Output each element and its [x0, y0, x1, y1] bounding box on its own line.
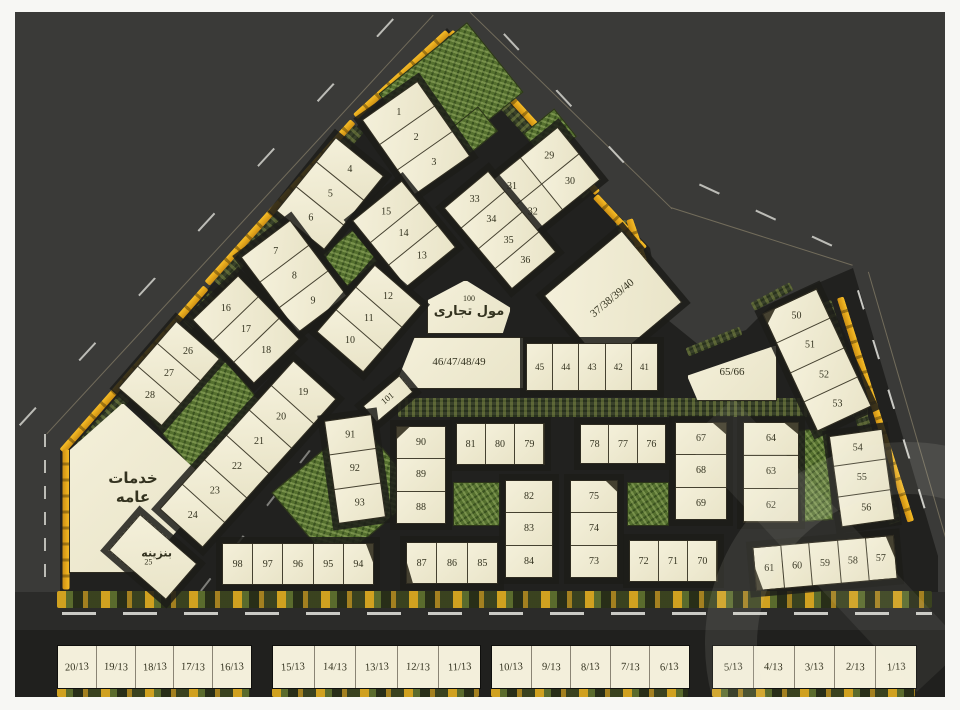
plot-number: 20/13: [65, 661, 89, 673]
plot-number: 7: [273, 245, 278, 256]
plot-number: 44: [561, 362, 570, 372]
plot: 42: [606, 344, 631, 390]
plot-number: 11/13: [448, 661, 472, 673]
plot-number: 53: [832, 398, 842, 409]
plot-number: 51: [805, 340, 815, 351]
plot-number: 43: [588, 362, 597, 372]
plot-number: 67: [696, 433, 706, 444]
plot-number: 70: [697, 556, 707, 567]
plot-label: 65/66: [719, 366, 744, 380]
road-dash-line: [62, 612, 932, 615]
plot: 94: [344, 544, 373, 584]
plot: 74: [571, 513, 617, 544]
plot-strip: 828384: [505, 480, 553, 578]
plot-number: 88: [416, 502, 426, 513]
plot: 77: [609, 425, 636, 463]
plot-number: 6: [308, 212, 313, 223]
plot: 14/13: [315, 646, 356, 688]
plot: 67: [676, 423, 726, 454]
plot-number: 1: [396, 108, 401, 119]
plot-number: 57: [876, 553, 886, 564]
plot-number: 87: [417, 558, 427, 569]
plot-number: 9: [310, 296, 315, 307]
plot-number: 61: [764, 562, 774, 573]
plot-number: 30: [565, 176, 575, 187]
plot-number: 68: [696, 465, 706, 476]
plot-label: 101: [379, 390, 397, 407]
plot-number: 78: [590, 439, 600, 450]
plot-number: 71: [668, 556, 678, 567]
plot: 96: [283, 544, 312, 584]
plot-number: 15: [381, 206, 391, 217]
grass-patch: [627, 482, 669, 526]
plot-number: 41: [640, 362, 649, 372]
plot: 64: [744, 423, 798, 455]
hedge-strip: [57, 591, 932, 608]
plot: 88: [397, 492, 445, 523]
plot-number: 8/13: [581, 661, 600, 673]
plot-number: 76: [646, 439, 656, 450]
plot-number: 12/13: [406, 661, 430, 673]
plot-number: 82: [524, 491, 534, 502]
plot: 57: [866, 536, 897, 580]
plot-label: 37/38/39/40: [588, 277, 638, 322]
plot: 44: [553, 344, 578, 390]
plot-number: 74: [589, 523, 599, 534]
plot-number: 36: [520, 255, 530, 266]
plot-number: 3/13: [805, 661, 824, 673]
plot-number: 19/13: [104, 661, 128, 673]
plot: 95: [314, 544, 343, 584]
plot-number: 58: [848, 555, 858, 566]
plot-number: 89: [416, 469, 426, 480]
plot: 97: [253, 544, 282, 584]
plot: 18/13: [136, 646, 174, 688]
plot-number: 19: [298, 387, 308, 398]
plot-number: 5: [328, 187, 333, 198]
plot: 70: [688, 541, 716, 581]
plot-number: 1/13: [886, 661, 905, 673]
plot: 87: [407, 543, 436, 583]
site-plan-map: 37/38/39/4046/47/48/4965/66101100مول تجا…: [15, 12, 945, 697]
plot-number: 13/13: [364, 661, 388, 673]
plot-number: 72: [639, 556, 649, 567]
plot-number: 35: [503, 235, 513, 246]
plot-number: 93: [355, 497, 365, 508]
plot-number: 16/13: [220, 661, 244, 673]
yellow-curb: [63, 449, 70, 589]
grass-patch: [453, 482, 501, 526]
plot-number: 91: [345, 429, 355, 440]
plot: 98: [223, 544, 252, 584]
plot-number: 8: [291, 270, 296, 281]
plot-number: 54: [853, 442, 863, 453]
plot-number: 20: [276, 412, 286, 423]
plot-number: 86: [447, 558, 457, 569]
plot: 5/13: [713, 646, 753, 688]
plot-number: 56: [861, 503, 871, 514]
plot-strip: 676869: [675, 422, 727, 520]
plot: 2/13: [835, 646, 875, 688]
plot-number: 21: [254, 436, 264, 447]
plot: 15/13: [273, 646, 314, 688]
plot-number: 55: [857, 472, 867, 483]
plot-strip: 878685: [406, 542, 498, 584]
plot-number: 75: [589, 491, 599, 502]
plot: 20/13: [58, 646, 96, 688]
plot-number: 11: [364, 312, 374, 323]
plot-strip: 757473: [570, 480, 618, 578]
plot-number: 63: [766, 466, 776, 477]
named-plot: 46/47/48/49: [394, 337, 524, 389]
plot: 85: [468, 543, 497, 583]
plot: 17/13: [174, 646, 212, 688]
plot: 84: [506, 546, 552, 577]
plot-number: 15/13: [281, 661, 305, 673]
plot-number: 80: [495, 439, 505, 450]
plot: 90: [397, 427, 445, 458]
plot: 7/13: [611, 646, 650, 688]
plot-number: 18: [261, 345, 271, 356]
plot-strip: 9897969594: [222, 543, 374, 585]
plot-number: 92: [350, 463, 360, 474]
plot-number: 42: [614, 362, 623, 372]
plot: 13/13: [356, 646, 397, 688]
plot-number: 2/13: [846, 661, 865, 673]
plot-number: 24: [188, 510, 198, 521]
plot-number: 17/13: [181, 661, 205, 673]
plot-number: 34: [487, 214, 497, 225]
plot: 93: [335, 483, 385, 522]
plot-strip: 727170: [629, 540, 718, 582]
plot: 82: [506, 481, 552, 512]
plot: 19/13: [97, 646, 135, 688]
plot-number: 59: [820, 558, 830, 569]
plot: 63: [744, 456, 798, 488]
plot-label: خدمات: [108, 469, 157, 488]
plot: 60: [782, 543, 813, 587]
plot: 6/13: [650, 646, 689, 688]
plot-number: 14/13: [323, 661, 347, 673]
plot-strip: 4544434241: [526, 343, 658, 391]
plot: 8/13: [571, 646, 610, 688]
plot-number: 73: [589, 556, 599, 567]
plot-number: 81: [466, 439, 476, 450]
plot-number: 85: [477, 558, 487, 569]
plot-number: 64: [766, 433, 776, 444]
plot-number: 45: [535, 362, 544, 372]
plot-number: 79: [524, 439, 534, 450]
plot-number: 23: [210, 485, 220, 496]
plot-number: 13: [417, 251, 427, 262]
plot-number: 95: [323, 559, 333, 570]
plot-number: 17: [241, 323, 251, 334]
plot-number: 5/13: [723, 661, 742, 673]
plot: 75: [571, 481, 617, 512]
plot-strip: 646362: [743, 422, 799, 523]
plot-number: 33: [470, 194, 480, 205]
plot-number: 4: [347, 163, 352, 174]
plot: 83: [506, 513, 552, 544]
plot-number: 12: [383, 290, 393, 301]
plot: 43: [579, 344, 604, 390]
plot-number: 94: [353, 559, 363, 570]
plot: 45: [527, 344, 552, 390]
road-dash-line: [44, 434, 46, 582]
plot-number: 2: [413, 132, 418, 143]
plot: 59: [810, 541, 841, 585]
bottom-parcel-block: 20/1319/1318/1317/1316/13: [57, 645, 252, 689]
plot-label: 100: [463, 294, 475, 304]
bottom-parcel-block: 5/134/133/132/131/13: [712, 645, 917, 689]
plot-number: 16: [221, 302, 231, 313]
plot: 11/13: [439, 646, 480, 688]
plot: 73: [571, 546, 617, 577]
plot: 69: [676, 488, 726, 519]
plot-strip: 818079: [456, 423, 545, 465]
plot-number: 83: [524, 523, 534, 534]
plot: 76: [638, 425, 665, 463]
plot-number: 69: [696, 498, 706, 509]
plot-number: 52: [819, 369, 829, 380]
plot: 89: [397, 459, 445, 490]
plot-number: 77: [618, 439, 628, 450]
road-dash-line: [699, 184, 845, 253]
plot: 58: [838, 538, 869, 582]
plot: 1/13: [876, 646, 916, 688]
plot: 56: [838, 490, 894, 526]
plot-number: 10: [345, 335, 355, 346]
plot-number: 22: [232, 461, 242, 472]
plot-strip: 908988: [396, 426, 446, 524]
plot-number: 18/13: [142, 661, 166, 673]
plot: 80: [486, 424, 514, 464]
bottom-parcel-block: 10/139/138/137/136/13: [491, 645, 690, 689]
plot-number: 27: [164, 367, 174, 378]
plot: 92: [330, 449, 380, 488]
road-edge-line: [671, 207, 852, 265]
plot-number: 4/13: [764, 661, 783, 673]
plot: 71: [659, 541, 687, 581]
plot-label: مول تجارى: [434, 304, 505, 320]
plot: 4/13: [754, 646, 794, 688]
plot-label: عامه: [116, 488, 150, 507]
grass-patch: [795, 428, 833, 522]
plot-number: 32: [528, 207, 538, 218]
plot-number: 62: [766, 500, 776, 511]
plot-number: 96: [293, 559, 303, 570]
plot: 41: [632, 344, 657, 390]
plot: 16/13: [213, 646, 251, 688]
plot-number: 29: [544, 150, 554, 161]
plot: 68: [676, 455, 726, 486]
plot: 81: [457, 424, 485, 464]
plot: 72: [630, 541, 658, 581]
plot-label: 25: [144, 557, 152, 567]
plot-number: 31: [507, 181, 517, 192]
plot: 79: [515, 424, 543, 464]
plot-number: 28: [145, 390, 155, 401]
plot-number: 60: [792, 560, 802, 571]
plot-number: 84: [524, 556, 534, 567]
plot: 61: [753, 546, 784, 590]
plot-number: 10/13: [499, 661, 523, 673]
plot: 86: [437, 543, 466, 583]
plot-number: 14: [399, 228, 409, 239]
plot-number: 50: [792, 311, 802, 322]
plot-number: 6/13: [660, 661, 679, 673]
plot-number: 90: [416, 437, 426, 448]
bottom-parcel-block: 15/1314/1313/1312/1311/13: [272, 645, 481, 689]
plot: 3/13: [795, 646, 835, 688]
plot-number: 97: [263, 559, 273, 570]
plot-number: 26: [183, 345, 193, 356]
plot: 9/13: [532, 646, 571, 688]
plot-number: 9/13: [541, 661, 560, 673]
hedge-strip: [398, 398, 868, 417]
plot-number: 3: [431, 157, 436, 168]
plot: 91: [325, 415, 375, 454]
plot-number: 7/13: [621, 661, 640, 673]
plot: 10/13: [492, 646, 531, 688]
plot-label: 46/47/48/49: [432, 356, 485, 370]
plot-strip: 787776: [580, 424, 666, 464]
plot: 62: [744, 489, 798, 521]
plot: 12/13: [398, 646, 439, 688]
plot-number: 98: [233, 559, 243, 570]
plot: 78: [581, 425, 608, 463]
